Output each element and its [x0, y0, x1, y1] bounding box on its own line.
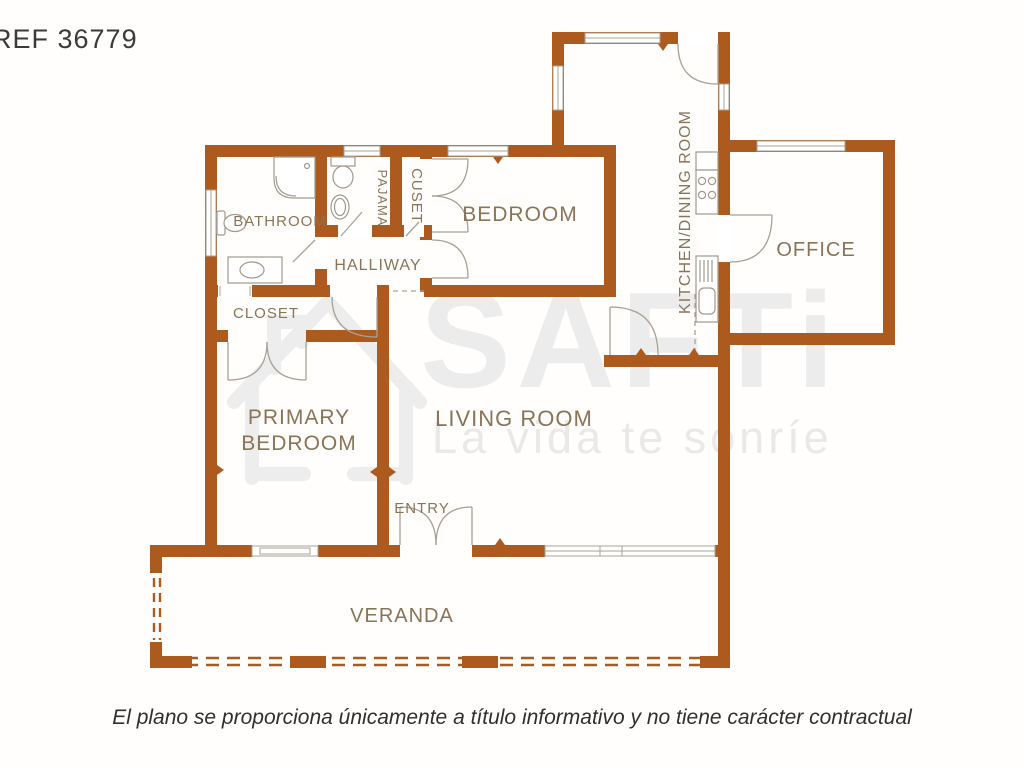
shower-head-icon	[305, 164, 310, 169]
room-label-bedroom: BEDROOM	[462, 203, 578, 226]
room-label-hallway: HALLIWAY	[334, 257, 421, 274]
toilet-icon	[333, 166, 353, 188]
room-label-veranda: VERANDA	[350, 605, 454, 627]
sink-bowl-icon	[699, 288, 715, 314]
room-label-primary-bedroom-line2: BEDROOM	[241, 432, 357, 455]
counter-icon	[696, 152, 718, 170]
room-label-pajama: PAJAMA	[375, 169, 390, 226]
room-label-bathroom: BATHROOM	[233, 213, 327, 230]
disclaimer-text: El plano se proporciona únicamente a tít…	[0, 706, 1024, 730]
room-label-living-room: LIVING ROOM	[435, 406, 593, 431]
floor-plan-drawing: BATHROOM PAJAMA CUSET BEDROOM KITCHEN/DI…	[0, 0, 1024, 768]
room-label-primary-bedroom-line1: PRIMARY	[248, 406, 350, 429]
toilet-tank-icon	[331, 157, 355, 166]
room-label-closet: CLOSET	[233, 305, 299, 322]
room-label-cuset: CUSET	[408, 168, 425, 224]
shower-icon	[274, 157, 315, 198]
floor-plan-page: SAFTi La vida te sonríe	[0, 0, 1024, 768]
kitchen-fixtures	[696, 152, 718, 322]
room-label-kitchen-dining: KITCHEN/DINING ROOM	[677, 110, 694, 314]
sink-basin-icon	[240, 262, 264, 278]
room-label-entry: ENTRY	[394, 500, 450, 517]
reference-number: REF 36779	[0, 24, 138, 55]
walls	[150, 32, 895, 668]
room-label-office: OFFICE	[776, 239, 855, 261]
pajama-room-fixtures	[331, 157, 355, 219]
